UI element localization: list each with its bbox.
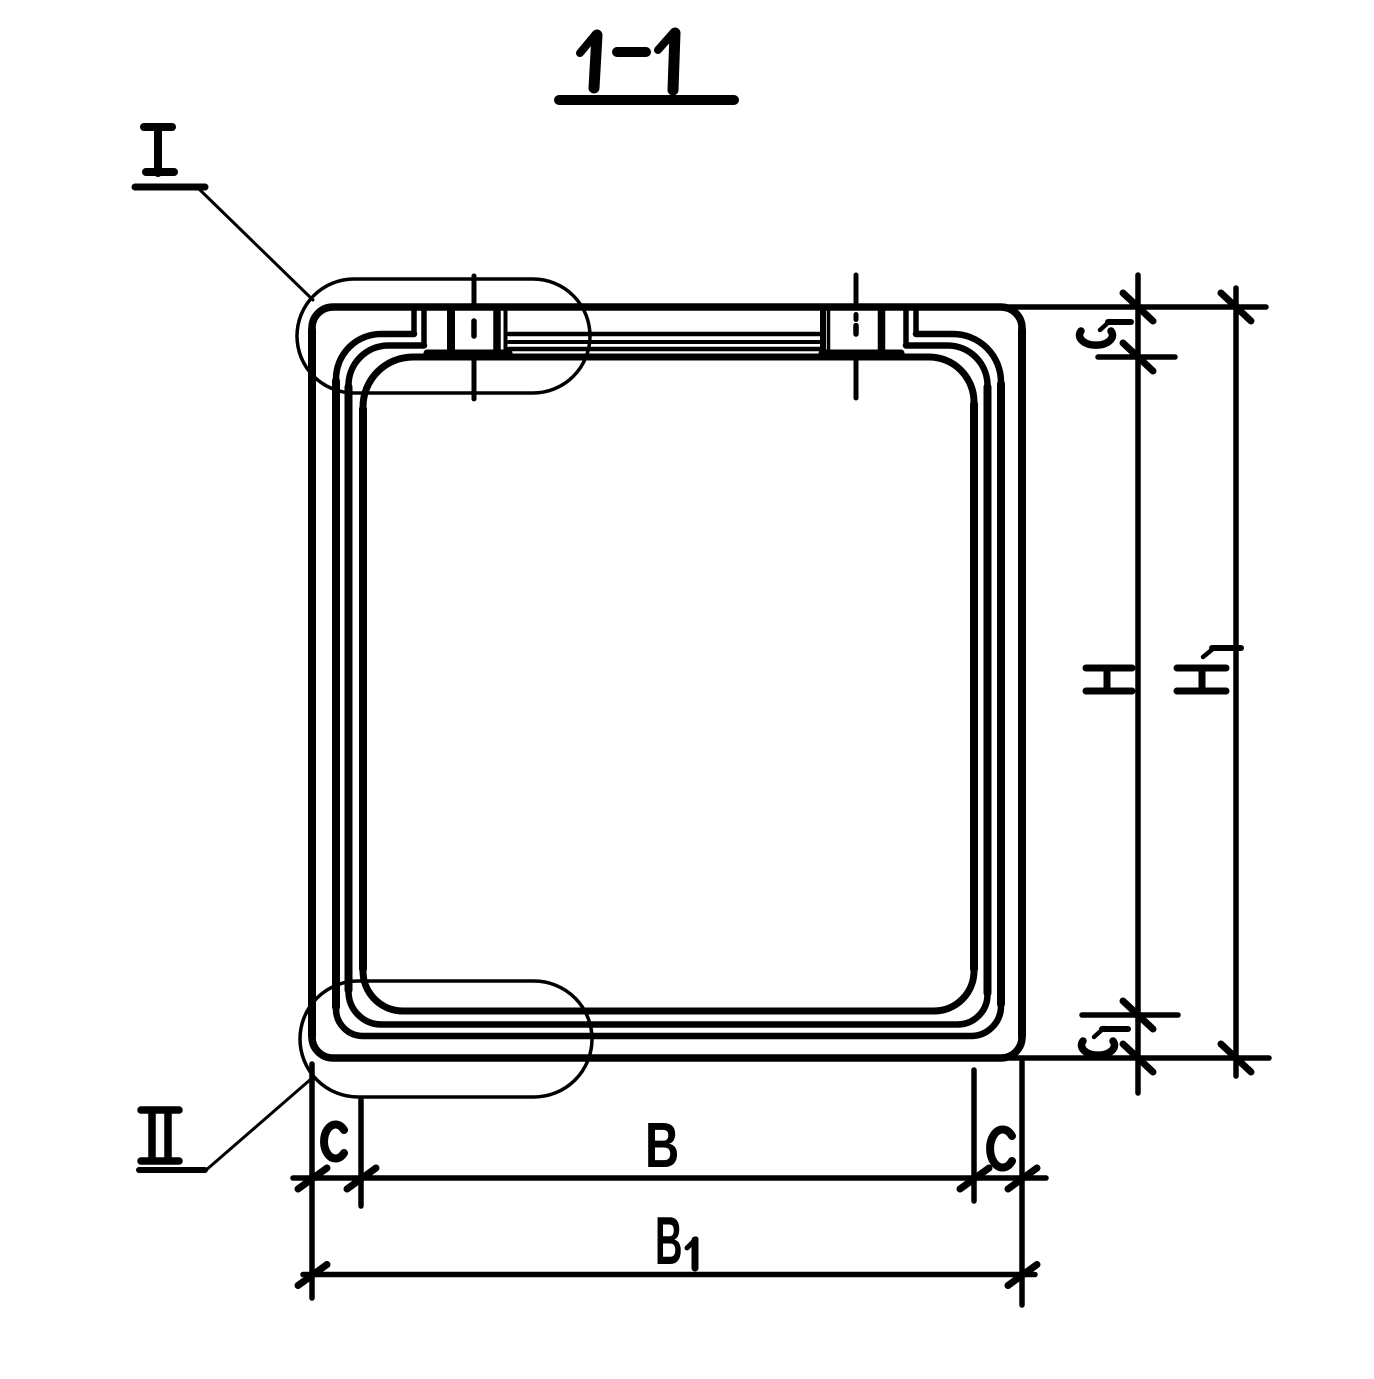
svg-text:B: B xyxy=(655,1202,682,1279)
svg-text:B: B xyxy=(645,1109,679,1181)
